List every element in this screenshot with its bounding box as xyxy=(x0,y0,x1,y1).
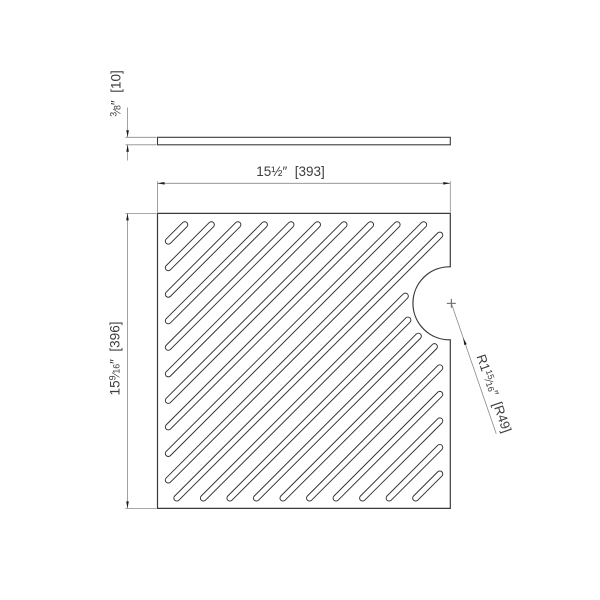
svg-text:R115⁄16″ [R49]: R115⁄16″ [R49] xyxy=(474,352,515,434)
svg-text:159⁄16″ [396]: 159⁄16″ [396] xyxy=(108,322,123,396)
svg-text:3⁄8″ [10]: 3⁄8″ [10] xyxy=(108,70,123,116)
svg-text:15½″ [393]: 15½″ [393] xyxy=(256,164,325,179)
